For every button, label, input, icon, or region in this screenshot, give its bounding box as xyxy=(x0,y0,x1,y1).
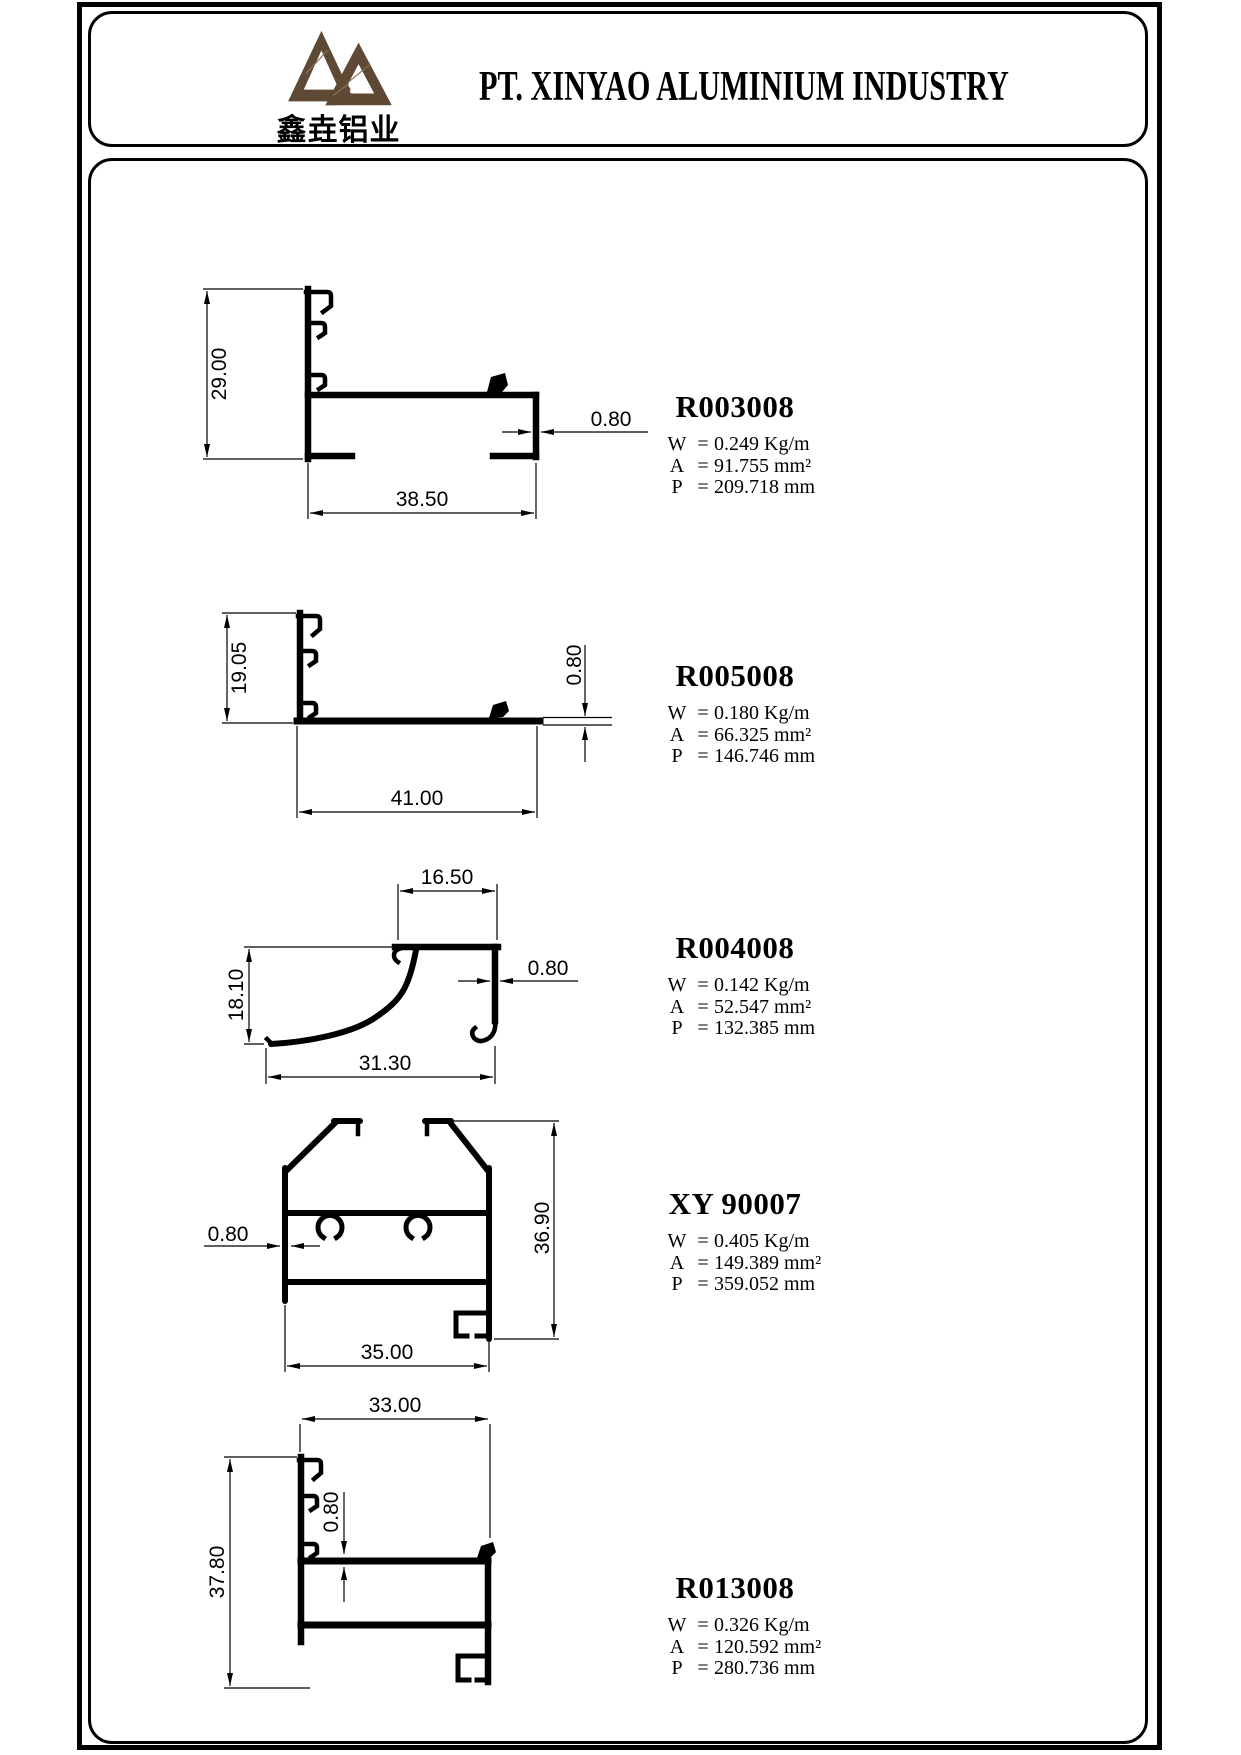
spec-weight: W=0.142 Kg/m xyxy=(662,975,870,997)
drawing-r013008: 33.00 0.80 37.80 xyxy=(206,1394,496,1688)
profile-code: R003008 xyxy=(600,390,870,424)
spec-block-r005008: R005008 W=0.180 Kg/m A=66.325 mm² P=146.… xyxy=(600,659,870,768)
spec-area: A=120.592 mm² xyxy=(662,1637,870,1659)
dim-r005008-height: 19.05 xyxy=(228,642,251,695)
drawing-r003008: 29.00 0.80 38.50 xyxy=(203,289,648,519)
catalog-page: 鑫垚铝业 PT. XINYAO ALUMINIUM INDUSTRY xyxy=(0,0,1241,1755)
dim-r004008-width: 31.30 xyxy=(359,1052,412,1075)
profile-code: R004008 xyxy=(600,931,870,965)
spec-perimeter: P=280.736 mm xyxy=(662,1658,870,1680)
spec-block-r003008: R003008 W=0.249 Kg/m A=91.755 mm² P=209.… xyxy=(600,390,870,499)
dim-xy90007-wall: 0.80 xyxy=(208,1223,249,1246)
dim-xy90007-width: 35.00 xyxy=(361,1341,414,1364)
profile-code: XY 90007 xyxy=(600,1187,870,1221)
profile-code: R013008 xyxy=(600,1571,870,1605)
drawing-r004008: 16.50 18.10 0.80 31.30 xyxy=(225,866,578,1084)
drawing-r005008: 19.05 0.80 41.00 xyxy=(222,613,612,818)
spec-perimeter: P=359.052 mm xyxy=(662,1274,870,1296)
dim-r013008-height: 37.80 xyxy=(206,1546,229,1599)
spec-weight: W=0.180 Kg/m xyxy=(662,703,870,725)
dim-r013008-width: 33.00 xyxy=(369,1394,422,1417)
dim-r003008-height: 29.00 xyxy=(208,348,231,401)
dim-r004008-top: 16.50 xyxy=(421,866,474,889)
spec-area: A=91.755 mm² xyxy=(662,456,870,478)
spec-area: A=149.389 mm² xyxy=(662,1253,870,1275)
spec-weight: W=0.405 Kg/m xyxy=(662,1231,870,1253)
spec-block-r013008: R013008 W=0.326 Kg/m A=120.592 mm² P=280… xyxy=(600,1571,870,1680)
spec-weight: W=0.249 Kg/m xyxy=(662,434,870,456)
dim-r003008-width: 38.50 xyxy=(396,488,449,511)
spec-perimeter: P=209.718 mm xyxy=(662,477,870,499)
spec-perimeter: P=146.746 mm xyxy=(662,746,870,768)
drawing-xy90007: 0.80 36.90 35.00 xyxy=(204,1121,559,1372)
profile-code: R005008 xyxy=(600,659,870,693)
dim-r005008-width: 41.00 xyxy=(391,787,444,810)
profile-drawings: 29.00 0.80 38.50 19.05 0.80 xyxy=(0,0,1241,1755)
spec-block-r004008: R004008 W=0.142 Kg/m A=52.547 mm² P=132.… xyxy=(600,931,870,1040)
spec-area: A=66.325 mm² xyxy=(662,725,870,747)
spec-weight: W=0.326 Kg/m xyxy=(662,1615,870,1637)
dim-r013008-wall: 0.80 xyxy=(320,1492,343,1533)
spec-block-xy90007: XY 90007 W=0.405 Kg/m A=149.389 mm² P=35… xyxy=(600,1187,870,1296)
dim-r005008-wall: 0.80 xyxy=(563,645,586,686)
spec-area: A=52.547 mm² xyxy=(662,997,870,1019)
dim-r004008-wall: 0.80 xyxy=(528,957,569,980)
dim-r004008-height: 18.10 xyxy=(225,969,248,1022)
dim-xy90007-height: 36.90 xyxy=(531,1202,554,1255)
spec-perimeter: P=132.385 mm xyxy=(662,1018,870,1040)
